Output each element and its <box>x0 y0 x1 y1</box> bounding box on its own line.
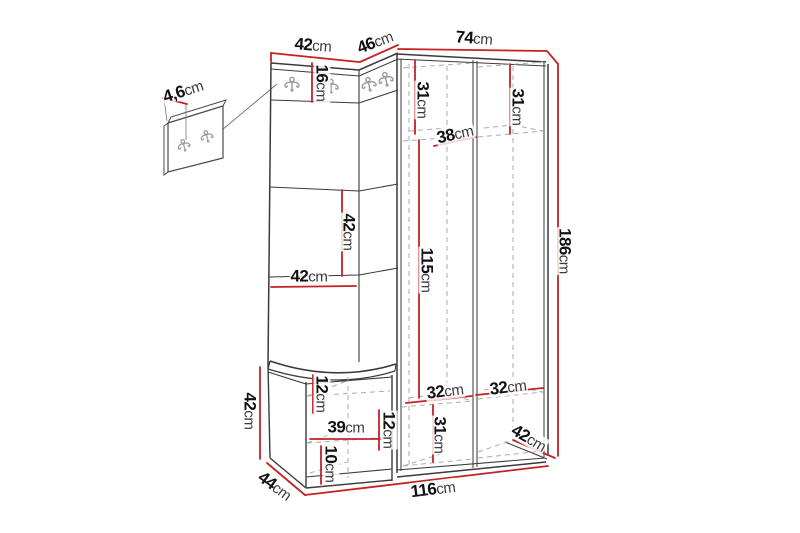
coat-hook-icon <box>324 79 338 93</box>
dim-line-top-left-width <box>271 53 359 62</box>
dim-line-hook-panel-thickness <box>163 98 187 104</box>
bench <box>268 361 396 488</box>
wall-hook-panel-detail <box>164 99 226 175</box>
dim-line-total-width <box>305 466 548 495</box>
coat-hook-icon <box>378 71 395 87</box>
dim-line-top-corner-width <box>360 45 398 62</box>
dim-line-panel-width <box>271 286 356 287</box>
bench-hidden-lines <box>307 377 390 478</box>
coat-hook-icon <box>361 76 378 92</box>
dim-line-bottom-shelf-right <box>476 388 543 395</box>
detail-pointer-line <box>222 84 277 130</box>
furniture-drawing <box>0 0 800 533</box>
dim-line-bench-depth <box>267 463 305 495</box>
dimension-diagram: 42cm 46cm 74cm 4,6cm 16cm 31cm 31cm 38cm… <box>0 0 800 533</box>
dim-line-bottom-shelf-left <box>406 396 472 403</box>
coat-rack-left-wing <box>268 53 398 365</box>
coat-hook-icon <box>285 77 299 91</box>
